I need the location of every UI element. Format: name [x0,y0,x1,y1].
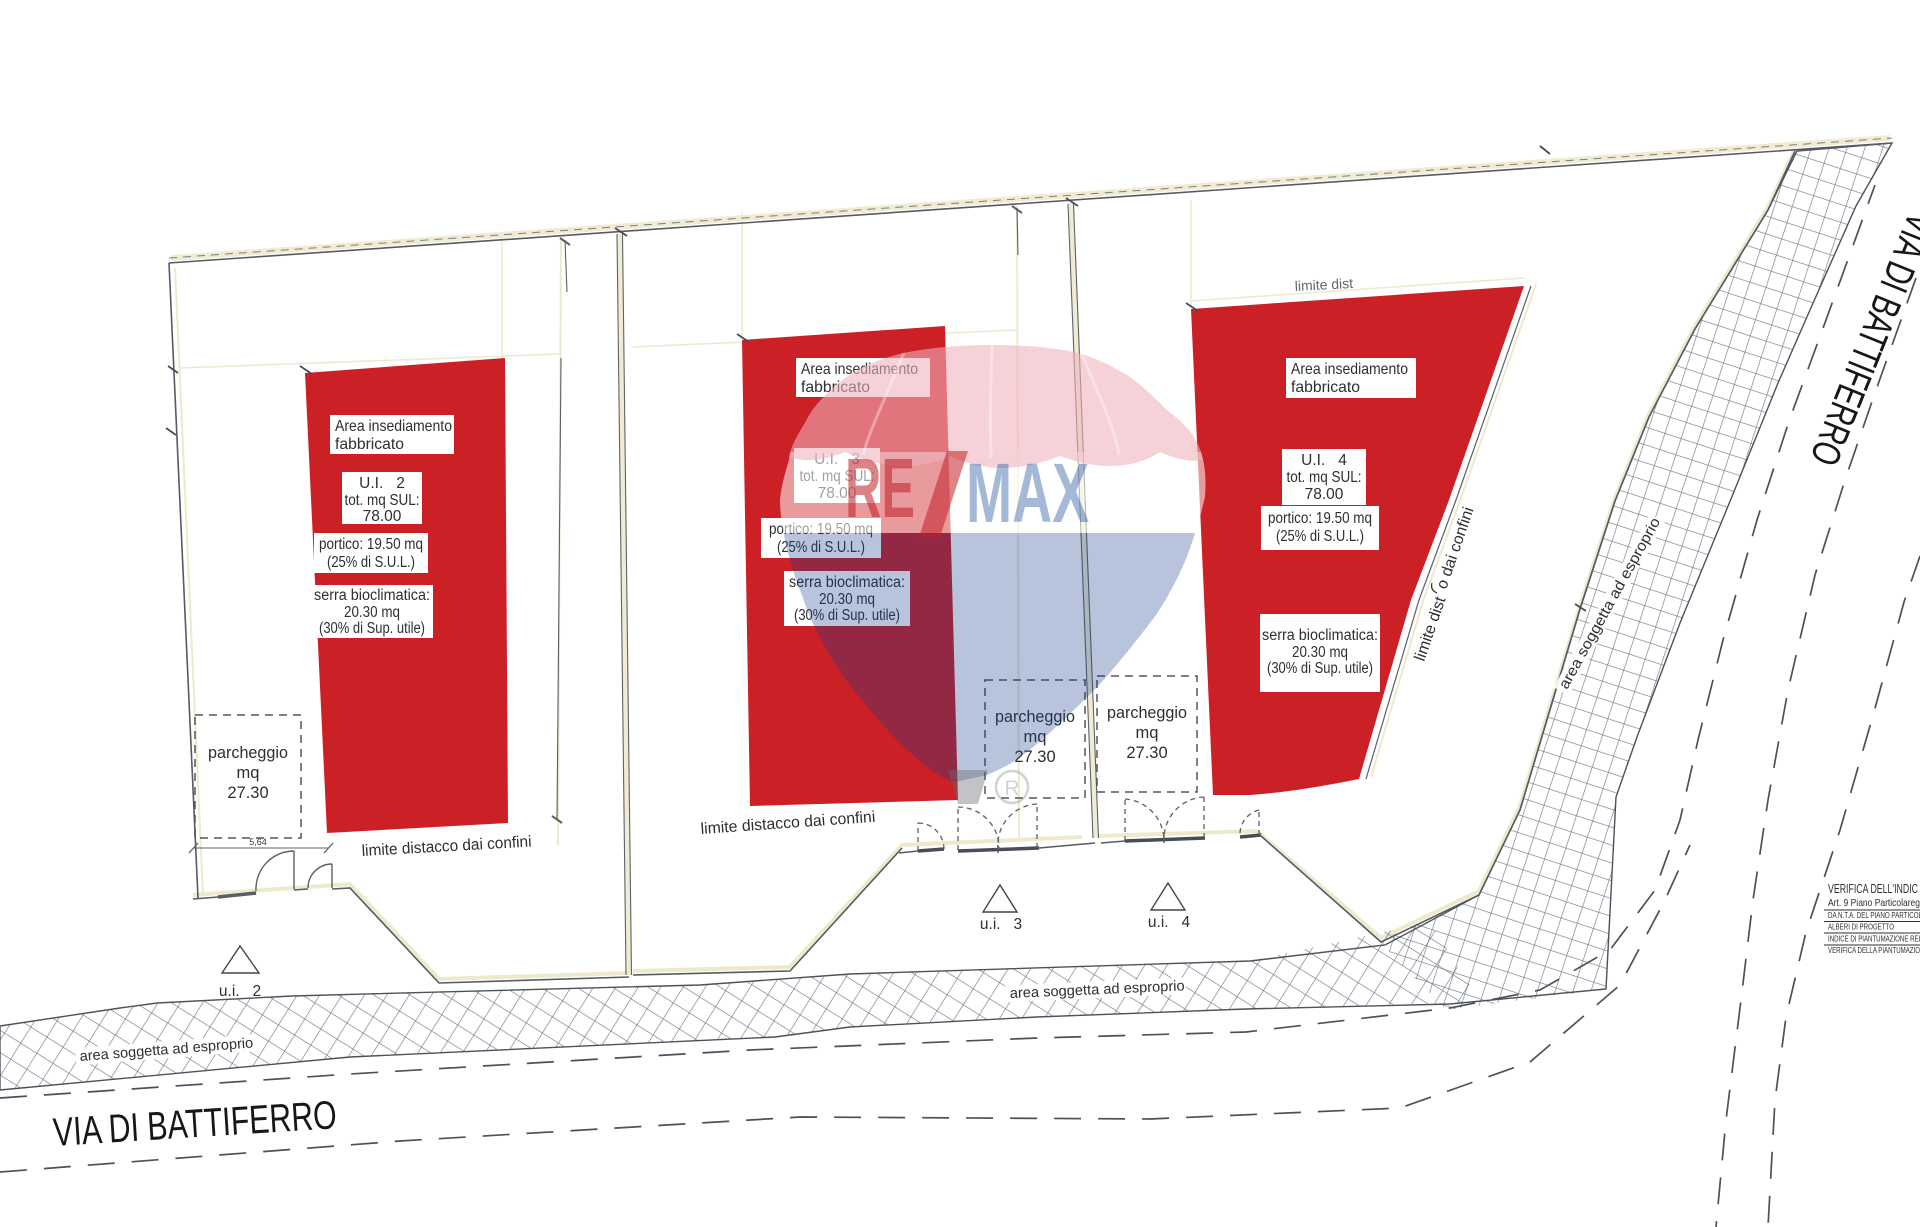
svg-text:78.00: 78.00 [1305,486,1344,503]
svg-text:portico: 19.50 mq: portico: 19.50 mq [1268,510,1372,527]
svg-text:parcheggio: parcheggio [1107,704,1187,722]
svg-text:fabbricato: fabbricato [335,436,404,453]
svg-text:RE: RE [845,441,915,536]
svg-text:DA N.T.A. DEL PIANO PARTICOL: DA N.T.A. DEL PIANO PARTICOL [1828,911,1920,920]
svg-text:Area insediamento: Area insediamento [1291,361,1408,378]
svg-text:20.30 mq: 20.30 mq [344,604,400,621]
svg-text:(30% di Sup. utile): (30% di Sup. utile) [319,620,425,637]
svg-text:U.I. 4: U.I. 4 [1301,452,1347,469]
svg-text:ALBERI DI PROGETTO: ALBERI DI PROGETTO [1828,923,1894,932]
svg-text:mq: mq [237,764,260,782]
svg-text:portico: 19.50 mq: portico: 19.50 mq [319,536,423,553]
svg-text:fabbricato: fabbricato [1291,379,1360,396]
svg-text:Area insediamento: Area insediamento [335,418,452,435]
svg-text:u.i. 4: u.i. 4 [1148,914,1191,931]
svg-text:VERIFICA DELLA PIANTUMAZIO: VERIFICA DELLA PIANTUMAZIO [1828,946,1920,955]
svg-text:27.30: 27.30 [1126,744,1167,762]
svg-text:VERIFICA DELL'INDIC: VERIFICA DELL'INDIC [1828,881,1918,896]
svg-text:parcheggio: parcheggio [208,744,288,762]
svg-text:u.i. 2: u.i. 2 [219,983,261,1000]
svg-text:R: R [1004,777,1019,800]
svg-text:INDICE DI PIANTUMAZIONE REL: INDICE DI PIANTUMAZIONE REL [1828,935,1920,944]
svg-text:27.30: 27.30 [227,784,268,802]
svg-text:78.00: 78.00 [363,508,402,525]
svg-text:20.30 mq: 20.30 mq [1292,644,1348,661]
svg-text:U.I. 2: U.I. 2 [359,475,405,492]
svg-text:mq: mq [1136,724,1159,742]
svg-text:tot. mq SUL:: tot. mq SUL: [1287,469,1362,486]
svg-text:tot. mq SUL:: tot. mq SUL: [345,492,420,509]
svg-text:(30% di Sup. utile): (30% di Sup. utile) [1267,660,1373,677]
svg-text:limite dist: limite dist [1294,275,1353,294]
svg-text:(25% di S.U.L.): (25% di S.U.L.) [1276,528,1364,545]
svg-text:serra bioclimatica:: serra bioclimatica: [314,587,430,604]
svg-text:serra bioclimatica:: serra bioclimatica: [1262,627,1378,644]
svg-text:Art. 9 Piano Particolareg: Art. 9 Piano Particolareg [1828,897,1920,909]
svg-text:(25% di S.U.L.): (25% di S.U.L.) [327,554,415,571]
svg-text:u.i. 3: u.i. 3 [980,916,1022,933]
svg-text:MAX: MAX [966,448,1089,541]
